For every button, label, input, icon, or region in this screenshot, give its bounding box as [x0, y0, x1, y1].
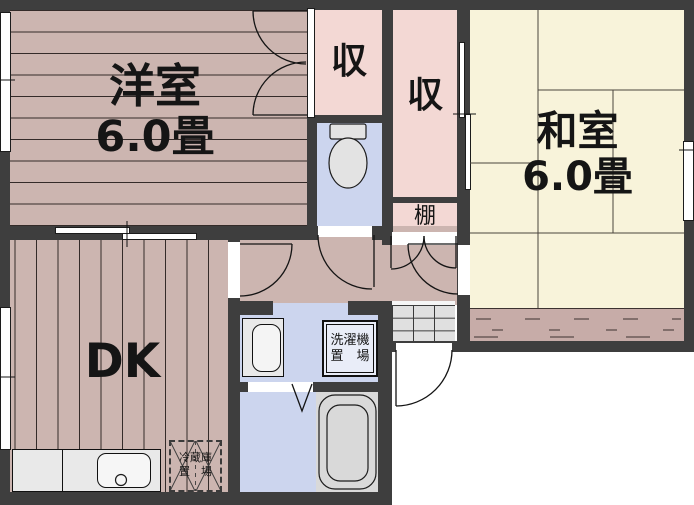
closet-upper-label: 収: [313, 38, 385, 86]
wall-bath-top-left: [240, 382, 248, 392]
western-room-size: 6.0畳: [95, 113, 214, 161]
wall-western-toilet: [307, 115, 317, 226]
dk-window: [0, 307, 11, 450]
shelf-label: 棚: [392, 203, 458, 232]
washing-machine-space-line2: 置 場: [330, 349, 369, 365]
washroom-doorway: [273, 305, 348, 315]
western-room-label: 洋室 6.0畳: [25, 50, 285, 172]
shelf-doorway: [392, 232, 457, 245]
shelf-name: 棚: [414, 205, 436, 230]
japanese-room-window: [683, 141, 694, 221]
floor-plan: 洋室 6.0畳 和室 6.0畳 収 収 DK 棚 洗濯機 置 場 冷蔵庫 置 場: [0, 0, 694, 505]
western-dk-slider-panel-2: [122, 233, 197, 240]
japanese-room-label: 和室 6.0畳: [475, 96, 680, 212]
japanese-room-doorway: [458, 245, 470, 295]
closet-upper-name: 収: [331, 42, 367, 82]
wall-washroom-top-left: [240, 301, 273, 315]
western-room-window: [0, 12, 11, 152]
western-dk-slider-panel-1: [55, 227, 130, 234]
dk-name: DK: [85, 336, 160, 389]
dk-label: DK: [60, 332, 185, 392]
wall-top: [0, 0, 694, 10]
washbasin-bowl: [252, 324, 281, 372]
bath-doorway: [248, 382, 313, 392]
japanese-room-name: 和室: [537, 109, 619, 155]
toilet-doorway: [318, 226, 372, 237]
wall-bath-entrance: [378, 301, 392, 505]
kitchen-counter-divider: [62, 450, 63, 491]
wall-washroom-top-right: [348, 301, 378, 315]
refrigerator-space-label: 冷蔵庫 置 場: [169, 448, 222, 482]
closet-side-label: 収: [392, 72, 458, 120]
entrance-tile-floor: [392, 305, 455, 343]
washing-machine-space-label: 洗濯機 置 場: [324, 328, 376, 370]
wall-bath-top-right: [313, 382, 378, 392]
wall-toilet-door-stub-right: [372, 226, 382, 240]
western-room-name: 洋室: [109, 61, 201, 113]
bathtub-zone: [316, 392, 378, 492]
entrance-step-line: [392, 301, 455, 305]
kitchen-sink: [97, 453, 151, 488]
wall-toilet-door-stub-left: [310, 226, 318, 240]
toilet-floor: [313, 120, 382, 228]
japanese-room-size: 6.0畳: [522, 155, 633, 200]
closet-side-slider-panel-1: [459, 42, 465, 118]
washing-machine-space-line1: 洗濯機: [330, 333, 369, 349]
refrigerator-space-line2: 置 場: [179, 465, 212, 479]
wall-bottom-left: [0, 492, 392, 505]
wall-closet-toilet: [307, 115, 393, 123]
dk-doorway: [228, 242, 240, 298]
bathroom-floor: [240, 392, 316, 492]
entrance-doorway: [396, 343, 452, 352]
veranda-floor: [470, 308, 684, 341]
closet-side-slider-panel-2: [465, 114, 471, 190]
refrigerator-space-line1: 冷蔵庫: [179, 451, 212, 465]
closet-side-name: 収: [407, 76, 443, 116]
